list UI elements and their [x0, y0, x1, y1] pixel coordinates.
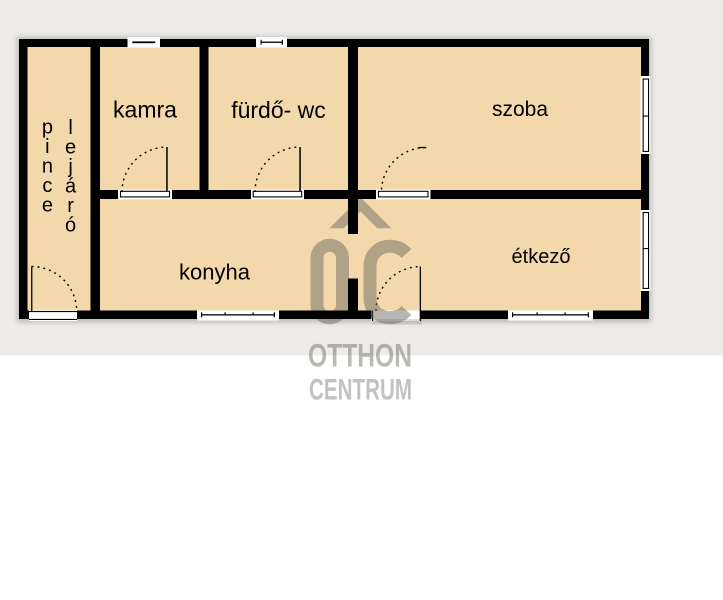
- svg-text:kamra: kamra: [113, 97, 177, 123]
- svg-text:étkező: étkező: [512, 246, 571, 268]
- svg-text:ó: ó: [65, 215, 76, 237]
- svg-text:fürdő- wc: fürdő- wc: [231, 97, 326, 123]
- svg-text:OTTHON: OTTHON: [308, 337, 412, 373]
- svg-text:konyha: konyha: [179, 260, 251, 285]
- svg-text:szoba: szoba: [492, 98, 548, 121]
- svg-text:CENTRUM: CENTRUM: [309, 374, 412, 407]
- svg-text:e: e: [42, 195, 53, 217]
